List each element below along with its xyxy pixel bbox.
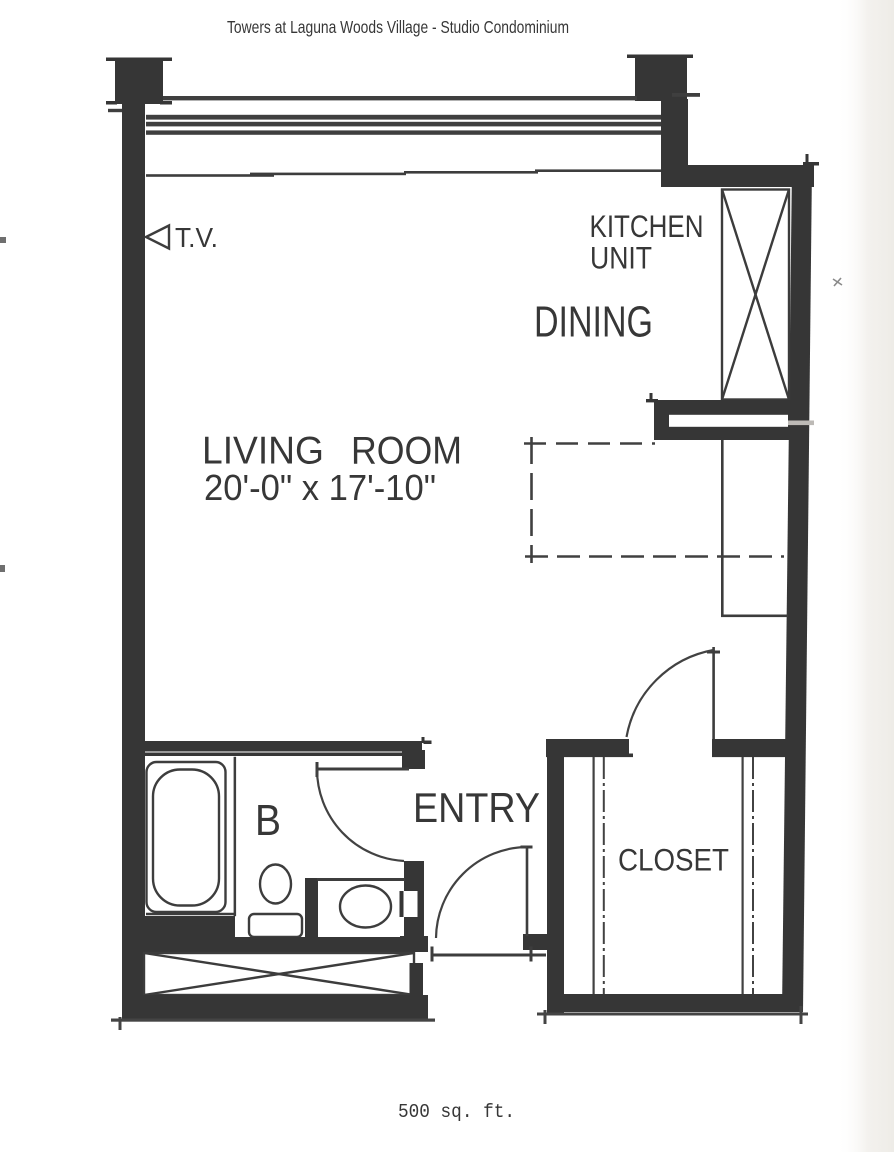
svg-text:CLOSET: CLOSET [618,842,729,878]
svg-text:DINING: DINING [534,298,653,347]
svg-text:UNIT: UNIT [590,240,652,276]
svg-text:20'-0" x 17'-10": 20'-0" x 17'-10" [204,467,436,508]
svg-text:ENTRY: ENTRY [413,784,540,831]
svg-text:500 sq. ft.: 500 sq. ft. [398,1101,515,1123]
svg-text:T.V.: T.V. [175,222,218,253]
svg-text:Towers at Laguna Woods Village: Towers at Laguna Woods Village - Studio … [227,17,569,37]
svg-text:B: B [255,796,281,845]
